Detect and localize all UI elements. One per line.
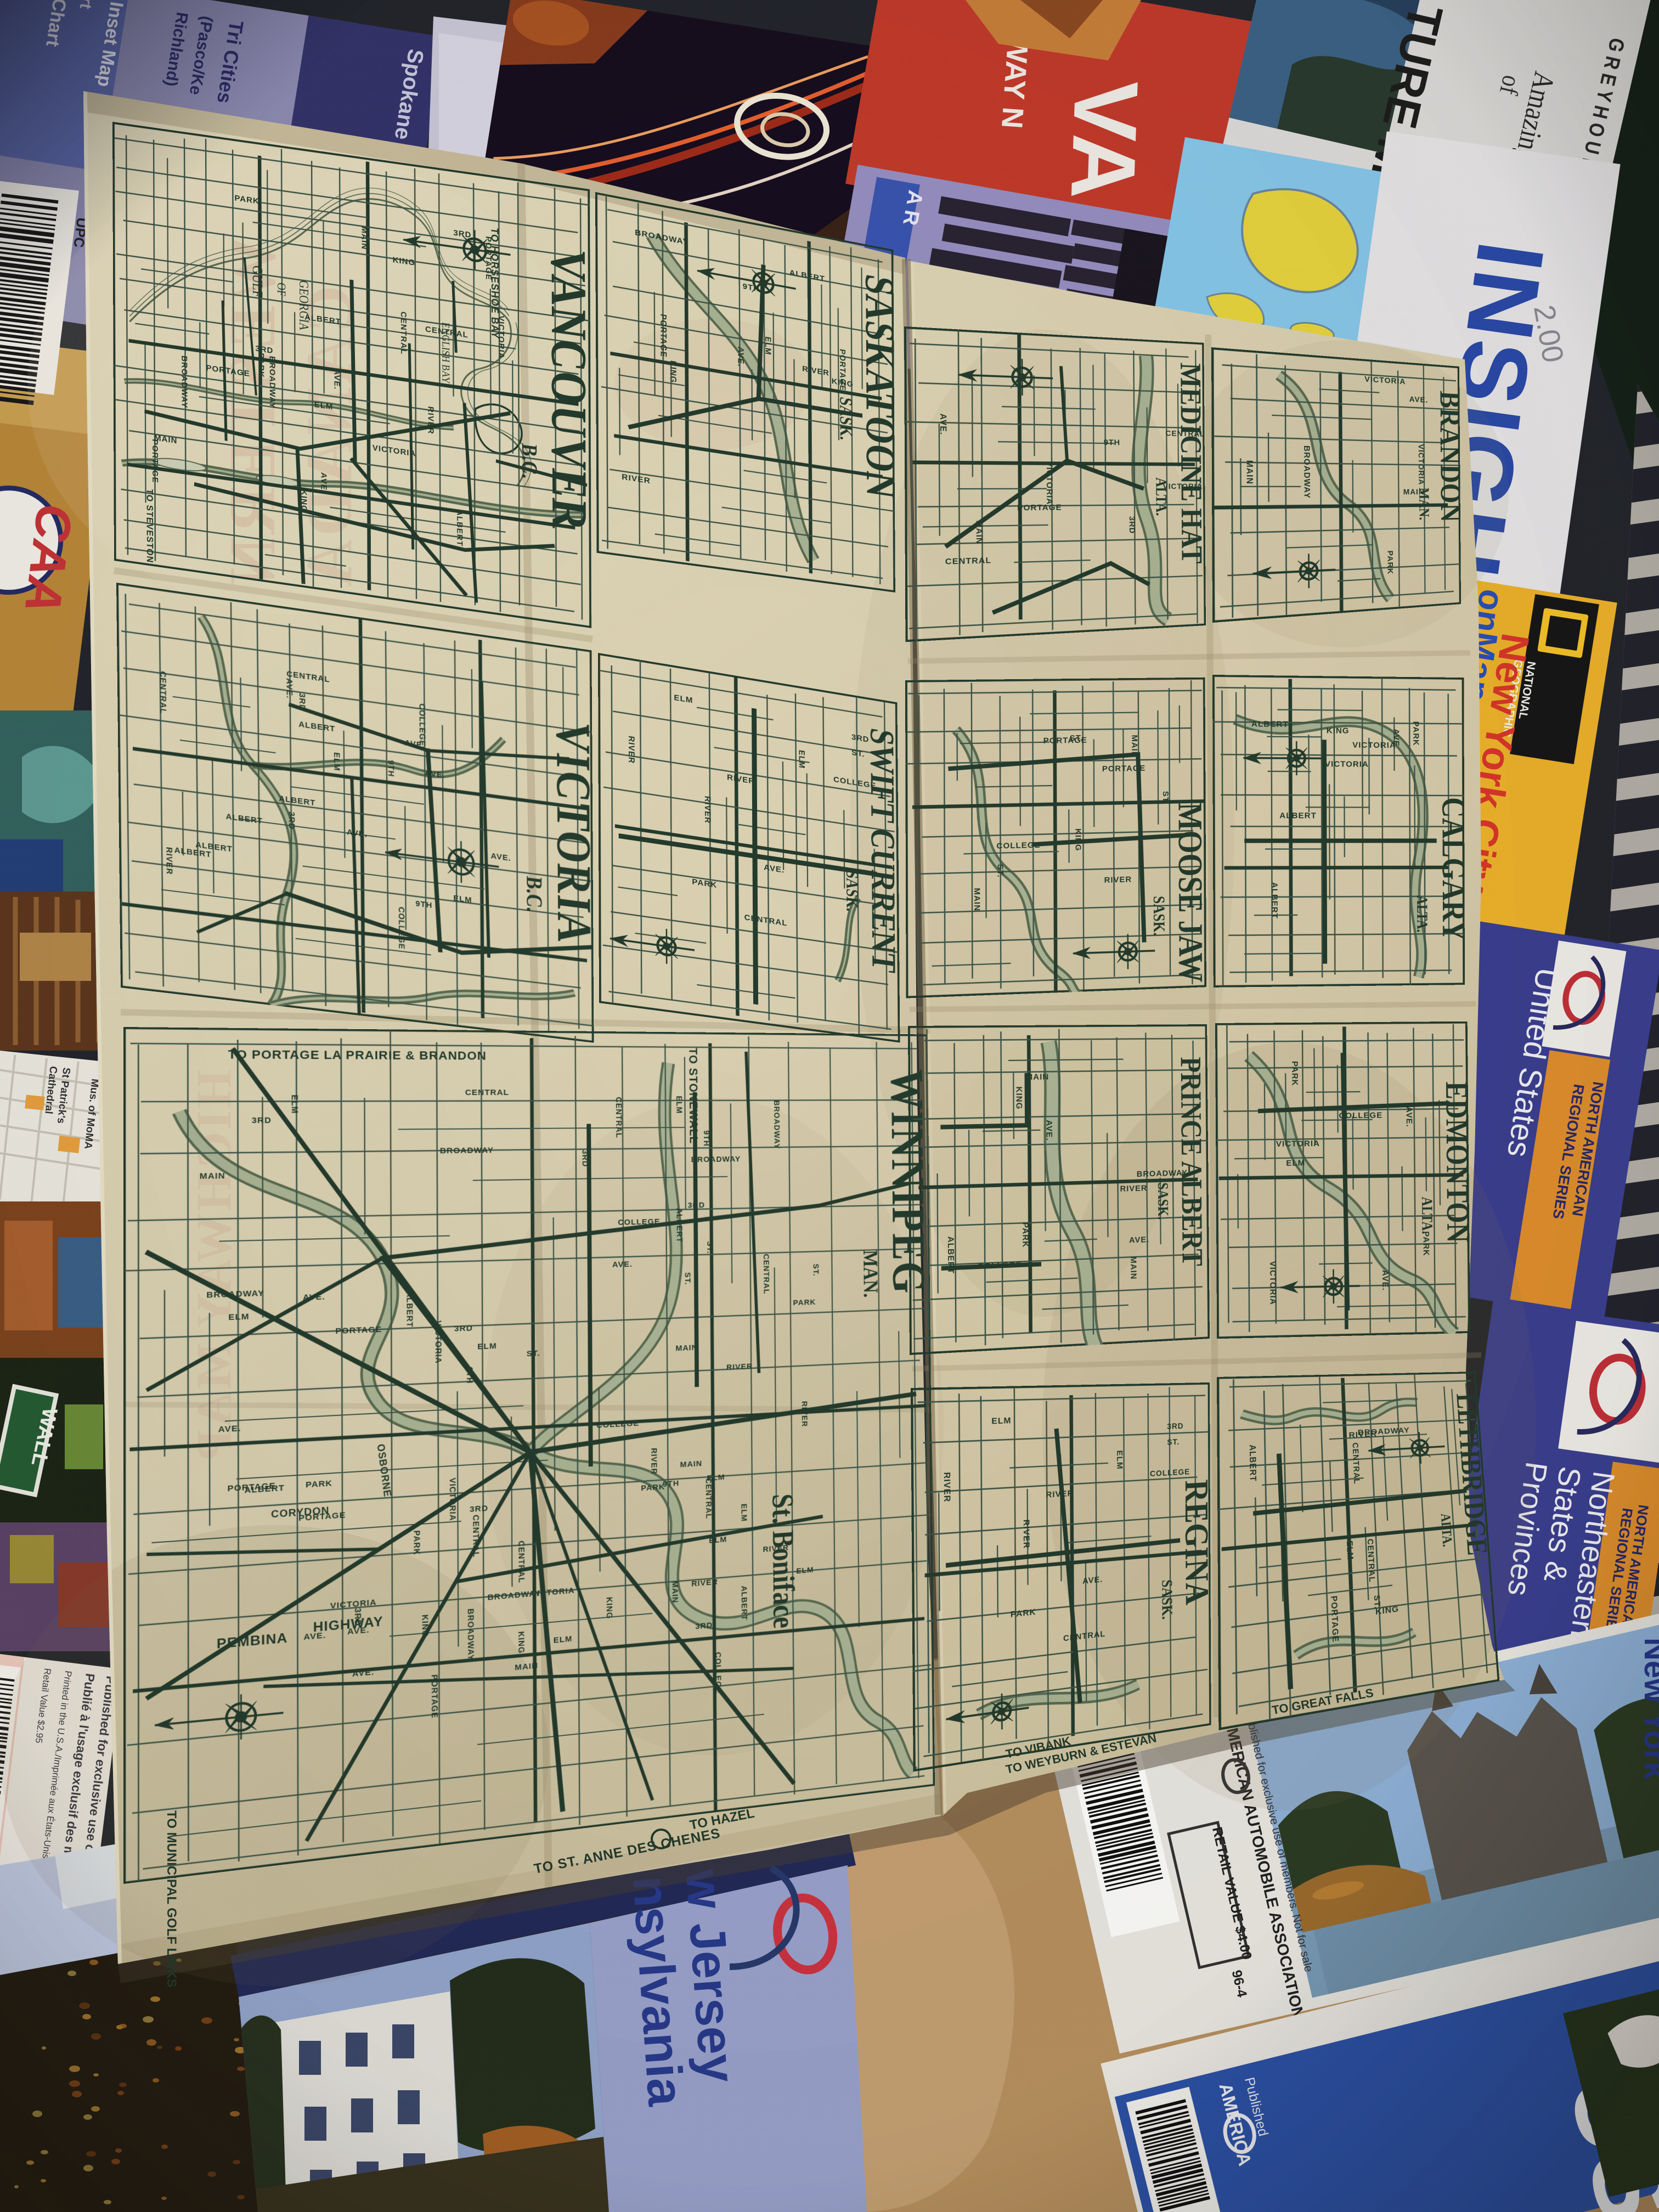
svg-text:3RD: 3RD [252,1116,272,1125]
svg-text:ST.: ST. [683,1272,692,1285]
svg-text:PEMBINA: PEMBINA [217,1630,288,1651]
svg-text:ELM: ELM [709,1535,727,1545]
svg-text:ST.: ST. [1167,1437,1180,1447]
svg-text:VICTORIA: VICTORIA [1268,1261,1277,1305]
svg-text:CENTRAL: CENTRAL [158,670,168,715]
svg-text:9TH: 9TH [415,899,432,910]
svg-text:GEORGIA: GEORGIA [297,279,312,332]
svg-text:CENTRAL: CENTRAL [744,913,788,928]
svg-text:RIVER: RIVER [164,847,173,876]
svg-text:COLLEGE: COLLEGE [996,841,1040,851]
svg-text:PORTAGE: PORTAGE [658,313,668,358]
svg-text:ALBERT: ALBERT [1251,720,1289,729]
svg-text:OF: OF [275,282,288,297]
svg-text:RIVER: RIVER [942,1472,952,1503]
svg-text:AVE.: AVE. [1380,1270,1390,1291]
svg-text:AVE.: AVE. [218,1424,241,1434]
svg-text:ALBERT: ALBERT [455,509,464,547]
svg-text:SWIFT CURRENT: SWIFT CURRENT [863,726,900,975]
svg-text:PARK: PARK [641,1482,665,1493]
svg-text:MAIN: MAIN [675,1344,698,1353]
svg-text:PARK: PARK [1386,550,1395,574]
svg-text:TO STONEWALL: TO STONEWALL [686,1048,700,1144]
svg-text:CENTRAL: CENTRAL [399,311,408,356]
svg-text:ST.: ST. [1070,734,1084,743]
svg-text:VICTORIA: VICTORIA [1163,482,1203,491]
svg-text:VICTORIA: VICTORIA [1352,741,1396,749]
svg-text:3RD: 3RD [1167,1421,1183,1431]
svg-text:AVE.: AVE. [303,1293,325,1302]
svg-text:AVE.: AVE. [347,1626,369,1637]
svg-text:AVE.: AVE. [1082,1575,1103,1586]
svg-text:MOOSE JAW: MOOSE JAW [1171,802,1206,983]
svg-text:ST.: ST. [811,1263,820,1276]
svg-text:ELM: ELM [1345,1541,1355,1561]
svg-text:3RD: 3RD [453,228,471,240]
svg-text:ST.: ST. [706,1241,714,1254]
svg-text:AVE.: AVE. [332,368,341,390]
svg-text:CENTRAL: CENTRAL [704,1478,713,1520]
svg-text:3RD: 3RD [353,1607,363,1627]
svg-text:PARK: PARK [1021,1222,1031,1248]
svg-text:SASK.: SASK. [1159,1579,1176,1621]
svg-text:SASK.: SASK. [843,869,862,913]
svg-text:AVE.: AVE. [736,346,746,368]
svg-text:B.C.: B.C. [522,875,547,914]
svg-text:MAIN: MAIN [972,888,981,911]
svg-text:AVE.: AVE. [352,1668,374,1679]
svg-text:3RD: 3RD [1127,516,1136,534]
svg-text:KING: KING [1074,828,1082,851]
svg-text:KING: KING [393,255,416,268]
svg-text:ELM: ELM [763,336,772,356]
svg-text:PORTAGE: PORTAGE [838,348,847,392]
svg-text:PORTAGE: PORTAGE [483,236,493,281]
svg-text:ALBERT: ALBERT [225,812,263,826]
svg-text:3RD: 3RD [454,1324,473,1333]
svg-text:PARK: PARK [412,1530,421,1555]
svg-text:MAIN: MAIN [200,1171,225,1181]
svg-text:9TH: 9TH [386,759,396,777]
svg-text:PORTAGE: PORTAGE [430,1674,439,1719]
svg-text:KING: KING [516,1631,526,1654]
svg-text:PORTAGE: PORTAGE [335,1325,382,1336]
svg-text:SASK.: SASK. [836,396,856,442]
svg-text:ALBERT: ALBERT [298,720,335,733]
svg-text:COLLEGE: COLLEGE [417,703,427,747]
svg-text:RIVER: RIVER [426,406,436,435]
svg-text:ELM: ELM [991,1415,1011,1426]
svg-text:RIVER: RIVER [1046,1488,1074,1499]
svg-text:BROADWAY: BROADWAY [1137,1168,1188,1179]
svg-text:PARK: PARK [692,877,717,890]
svg-text:CENTRAL: CENTRAL [762,1254,771,1294]
svg-text:VICTORIA: VICTORIA [448,1477,457,1521]
svg-text:ELM: ELM [796,1566,814,1576]
svg-text:PORTAGE: PORTAGE [1017,503,1062,512]
svg-text:COLLEGE: COLLEGE [714,1652,723,1694]
svg-text:VICTORIA: VICTORIA [1276,1139,1320,1149]
svg-text:ELM: ELM [1115,1450,1124,1470]
svg-text:CENTRAL: CENTRAL [1365,1538,1377,1583]
svg-text:AVE.: AVE. [1404,1107,1414,1127]
svg-text:TO PORTAGE LA PRAIRIE & BRANDO: TO PORTAGE LA PRAIRIE & BRANDON [228,1048,487,1063]
svg-text:3RD: 3RD [580,1150,589,1167]
svg-text:GULF: GULF [249,264,265,298]
svg-text:ELM: ELM [314,400,334,412]
svg-text:ALTA.: ALTA. [1438,1513,1455,1548]
svg-text:COLLEGE: COLLEGE [397,906,406,950]
svg-text:AVE.: AVE. [1409,395,1429,404]
svg-text:CENTRAL: CENTRAL [471,1515,481,1558]
svg-text:COLLEGE: COLLEGE [596,1419,639,1430]
svg-text:CALGARY: CALGARY [1435,797,1465,941]
svg-text:KING: KING [605,1596,613,1620]
svg-text:PARK: PARK [234,193,259,206]
svg-text:ALTA.: ALTA. [1413,895,1430,933]
svg-text:3RD: 3RD [688,1201,706,1210]
svg-text:3RD: 3RD [297,692,307,712]
svg-text:PARK: PARK [793,1298,816,1307]
svg-text:ST.: ST. [527,1349,540,1358]
svg-text:MAIN: MAIN [1130,735,1138,758]
svg-text:ELM: ELM [228,1312,249,1322]
svg-text:KING: KING [1014,1086,1024,1109]
svg-text:RIVER: RIVER [703,795,712,825]
svg-text:PARK: PARK [1011,1607,1036,1619]
svg-text:MAIN: MAIN [680,1459,703,1469]
svg-text:ALBERT: ALBERT [789,268,825,284]
svg-text:CENTRAL: CENTRAL [945,556,991,566]
svg-text:ELM: ELM [554,1634,573,1645]
svg-text:KING: KING [299,489,308,513]
svg-text:PORTAGE: PORTAGE [150,438,160,483]
svg-text:CENTRAL: CENTRAL [614,1097,623,1138]
svg-text:VICTORIA: VICTORIA [373,443,416,459]
svg-text:SASKATOON: SASKATOON [856,271,895,502]
svg-text:VANCOUVER: VANCOUVER [540,245,591,535]
svg-text:RIVER: RIVER [627,735,636,764]
svg-text:ELM: ELM [1286,1159,1305,1168]
svg-text:PRINCE ALBERT: PRINCE ALBERT [1175,1057,1209,1267]
svg-text:ELM: ELM [797,749,806,769]
svg-text:VICTORIA: VICTORIA [1045,461,1054,505]
svg-text:AVE.: AVE. [764,863,785,874]
svg-text:9TH: 9TH [702,1130,711,1147]
svg-text:PARK: PARK [1411,721,1420,746]
svg-text:ALBERT: ALBERT [946,1236,956,1274]
svg-text:MAIN: MAIN [1244,460,1255,484]
svg-text:ALBERT: ALBERT [405,1291,414,1328]
svg-text:RIVER: RIVER [1120,1183,1147,1194]
svg-text:MEDICINE HAT: MEDICINE HAT [1174,362,1206,565]
svg-text:ELM: ELM [477,1342,496,1352]
svg-text:PARK: PARK [306,1479,332,1490]
svg-text:RIVER: RIVER [1348,1430,1377,1440]
svg-text:AVE.: AVE. [1045,1120,1054,1141]
svg-text:PARK: PARK [256,352,266,379]
svg-text:ELM: ELM [675,1096,684,1114]
svg-text:REGINA: REGINA [1178,1479,1211,1606]
svg-text:VICTORIA: VICTORIA [1417,444,1425,485]
svg-text:CENTRAL: CENTRAL [1063,1629,1105,1643]
svg-text:SASK.: SASK. [1150,896,1168,936]
svg-text:BROADWAY: BROADWAY [206,1289,264,1300]
svg-text:RIVER: RIVER [1022,1519,1031,1549]
svg-text:PORTAGE: PORTAGE [1329,1595,1340,1643]
svg-text:ST.: ST. [1161,791,1170,805]
svg-text:KING: KING [420,1614,430,1638]
svg-text:COLLEGE: COLLEGE [978,1260,1022,1271]
svg-text:BROADWAY: BROADWAY [772,1101,781,1149]
svg-text:SASK.: SASK. [1154,1182,1171,1220]
svg-text:ELM: ELM [740,1503,748,1522]
svg-text:ST.: ST. [996,864,1005,878]
svg-text:COLLEGE: COLLEGE [1150,1467,1190,1479]
svg-text:MAIN: MAIN [359,226,369,251]
svg-text:BROADWAY: BROADWAY [267,356,276,409]
svg-text:RIVER: RIVER [800,1401,808,1427]
svg-text:COLLEGE: COLLEGE [1339,1111,1383,1120]
svg-text:MAIN: MAIN [1403,488,1425,496]
svg-text:CENTRAL: CENTRAL [465,1088,509,1097]
svg-text:9TH: 9TH [663,1479,679,1489]
svg-text:VICTORIA: VICTORIA [546,719,594,948]
svg-text:BROADWAY: BROADWAY [180,355,189,409]
svg-text:ALBERT: ALBERT [1270,882,1279,919]
svg-text:BROADWAY: BROADWAY [691,1155,741,1164]
svg-text:BRANDON: BRANDON [1434,390,1461,522]
svg-text:ST.: ST. [851,748,865,759]
svg-text:3RD: 3RD [287,811,296,830]
svg-text:ELM: ELM [290,1094,300,1114]
svg-text:AVE.: AVE. [1129,1235,1149,1245]
svg-text:9TH: 9TH [1104,438,1120,447]
svg-text:New York: New York [1638,1638,1659,1780]
svg-text:RIVER: RIVER [650,1448,658,1475]
svg-text:CENTRAL: CENTRAL [1351,1442,1362,1485]
svg-text:AVE.: AVE. [319,472,328,494]
svg-text:3RD: 3RD [695,1621,713,1630]
svg-text:AVE.: AVE. [490,851,511,863]
svg-text:B.C.: B.C. [517,442,541,481]
svg-text:MAIN: MAIN [1129,1256,1138,1280]
svg-text:VICTORIA: VICTORIA [433,1321,443,1364]
svg-text:EDMONTON: EDMONTON [1439,1081,1470,1243]
svg-text:9TH: 9TH [465,1367,474,1384]
svg-text:AVE.: AVE. [347,828,368,839]
svg-text:BROADWAY: BROADWAY [440,1146,494,1155]
svg-text:ELM: ELM [332,752,341,771]
svg-text:PORTAGE: PORTAGE [1102,764,1145,774]
svg-text:ALBERT: ALBERT [1279,811,1317,820]
svg-text:MAIN: MAIN [670,1581,679,1604]
svg-text:TO STEVESTON: TO STEVESTON [144,488,154,563]
svg-text:MAN.: MAN. [859,1250,882,1298]
svg-text:MAIN: MAIN [974,520,984,544]
svg-text:9TH: 9TH [743,282,760,294]
svg-text:ALTA.: ALTA. [1419,1197,1436,1234]
svg-text:CENTRAL: CENTRAL [1165,429,1205,438]
svg-text:RIVER: RIVER [802,364,830,377]
svg-text:3RD: 3RD [470,1504,488,1514]
svg-text:ALBERT: ALBERT [675,1208,684,1243]
svg-text:MAIN: MAIN [1025,1072,1049,1082]
svg-text:ALBERT: ALBERT [740,1585,748,1621]
svg-text:VICTORIA: VICTORIA [1325,760,1369,769]
svg-text:RIVER: RIVER [1104,875,1132,884]
svg-text:COLLEGE: COLLEGE [618,1217,660,1227]
svg-text:ALBERT: ALBERT [1248,1444,1258,1482]
svg-text:AVE.: AVE. [284,678,294,699]
svg-text:AVE.: AVE. [612,1260,633,1269]
svg-text:St. Boniface: St. Boniface [766,1493,800,1630]
svg-text:VA: VA [1052,79,1157,201]
svg-text:BROADWAY: BROADWAY [1302,445,1312,499]
svg-text:AVE.: AVE. [938,413,948,435]
svg-text:PARK: PARK [1421,1231,1431,1256]
svg-text:AVE.: AVE. [303,1631,326,1642]
svg-text:KING: KING [668,360,678,384]
svg-text:VICTORIA: VICTORIA [496,315,506,360]
svg-text:KING: KING [1327,726,1350,735]
svg-text:CENTRAL: CENTRAL [517,1541,526,1583]
svg-text:BROADWAY: BROADWAY [466,1608,475,1661]
svg-text:PARK: PARK [1290,1061,1299,1086]
svg-text:ELM: ELM [674,693,693,706]
svg-text:RIVER: RIVER [726,1362,753,1372]
